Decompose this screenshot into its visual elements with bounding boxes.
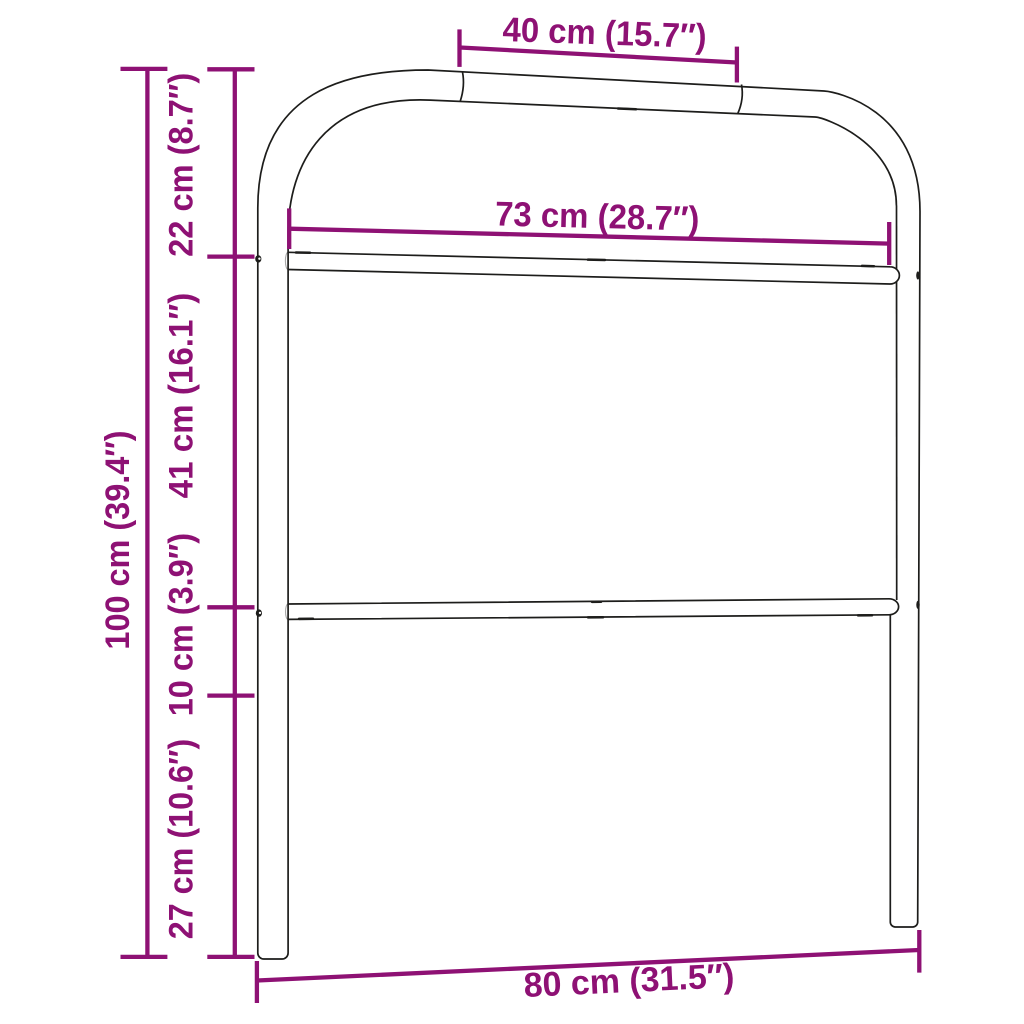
svg-text:27 cm (10.6″): 27 cm (10.6″) <box>163 739 201 940</box>
svg-text:73 cm (28.7″): 73 cm (28.7″) <box>495 195 700 239</box>
svg-text:10 cm (3.9″): 10 cm (3.9″) <box>163 533 201 716</box>
svg-text:41 cm (16.1″): 41 cm (16.1″) <box>162 293 201 499</box>
svg-text:40 cm (15.7″): 40 cm (15.7″) <box>502 10 707 56</box>
svg-text:22 cm (8.7″): 22 cm (8.7″) <box>163 73 201 257</box>
svg-text:100 cm (39.4″): 100 cm (39.4″) <box>99 430 137 649</box>
